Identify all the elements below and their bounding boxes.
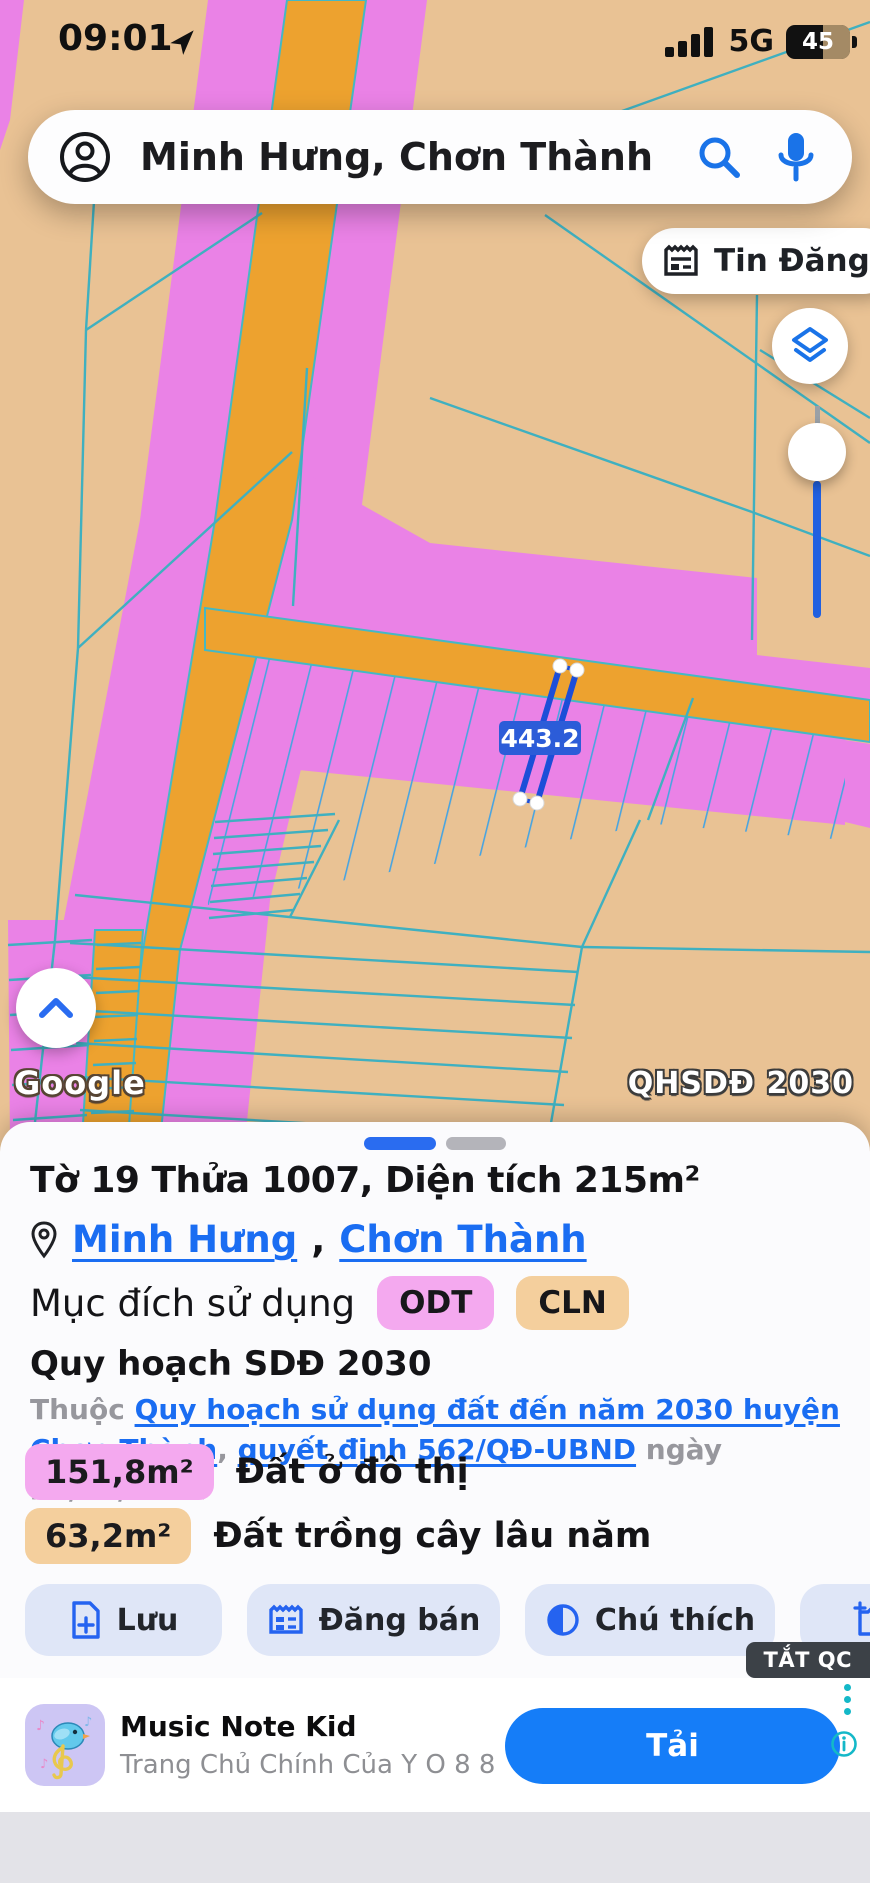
contrast-icon bbox=[545, 1602, 581, 1638]
parcel-area-label: 443.2 bbox=[500, 724, 579, 753]
ad-options-icon[interactable] bbox=[844, 1684, 851, 1715]
post-listing-icon bbox=[267, 1601, 305, 1639]
save-button[interactable]: Lưu bbox=[25, 1584, 222, 1656]
svg-text:♪: ♪ bbox=[40, 1757, 48, 1772]
zoom-slider-handle[interactable] bbox=[788, 423, 846, 481]
footer-spacer bbox=[0, 1812, 870, 1883]
save-label: Lưu bbox=[117, 1603, 179, 1638]
tin-dang-label: Tin Đăng bbox=[714, 243, 870, 279]
post-listing-label: Đăng bán bbox=[319, 1603, 481, 1638]
sheet-page-indicator[interactable] bbox=[0, 1137, 870, 1150]
map-layers-button[interactable] bbox=[772, 308, 848, 384]
search-input[interactable]: Minh Hưng, Chơn Thành bbox=[140, 135, 696, 179]
app-screen: 443.2 09:01 5G 45 Minh bbox=[0, 0, 870, 1883]
save-file-icon bbox=[69, 1600, 103, 1640]
chevron-up-icon bbox=[34, 993, 78, 1023]
battery-percent: 45 bbox=[802, 29, 834, 55]
ward-link[interactable]: Minh Hưng bbox=[72, 1218, 297, 1261]
planning-prefix: Thuộc bbox=[30, 1393, 135, 1426]
dismiss-ad-button[interactable]: TẮT QC bbox=[746, 1642, 870, 1678]
dismiss-ad-label: TẮT QC bbox=[764, 1648, 852, 1672]
legend-button[interactable]: Chú thích bbox=[525, 1584, 775, 1656]
ad-app-icon[interactable]: ♪ ♪ ♪ bbox=[25, 1704, 105, 1786]
legend-label: Chú thích bbox=[595, 1603, 755, 1638]
google-logo: Google bbox=[14, 1064, 146, 1102]
listings-icon bbox=[662, 242, 700, 280]
land-use-label: Mục đích sử dụng bbox=[30, 1282, 355, 1325]
ad-install-label: Tải bbox=[646, 1728, 699, 1764]
signal-strength-icon bbox=[665, 25, 717, 59]
location-separator: , bbox=[311, 1218, 325, 1261]
zone-row-cln: 63,2m² Đất trồng cây lâu năm bbox=[25, 1508, 651, 1564]
zone-name: Đất ở đô thị bbox=[236, 1452, 469, 1492]
svg-text:♪: ♪ bbox=[84, 1715, 92, 1730]
zone-name: Đất trồng cây lâu năm bbox=[213, 1516, 651, 1556]
battery-indicator: 45 bbox=[786, 25, 850, 59]
zone-area-badge: 63,2m² bbox=[25, 1508, 191, 1564]
ad-install-button[interactable]: Tải bbox=[505, 1708, 840, 1784]
camera-plus-icon bbox=[852, 1600, 870, 1640]
land-use-badge-odt: ODT bbox=[377, 1276, 494, 1330]
status-time: 09:01 bbox=[58, 18, 173, 59]
account-icon[interactable] bbox=[58, 130, 112, 184]
zone-row-odt: 151,8m² Đất ở đô thị bbox=[25, 1444, 469, 1500]
status-bar: 09:01 5G 45 bbox=[0, 0, 870, 80]
ad-title[interactable]: Music Note Kid bbox=[120, 1710, 357, 1743]
ad-banner[interactable]: ♪ ♪ ♪ Music Note Kid Trang Chủ Chính Của… bbox=[0, 1678, 870, 1812]
ad-info-icon[interactable] bbox=[830, 1730, 858, 1758]
page-indicator-inactive[interactable] bbox=[446, 1137, 506, 1150]
post-listing-button[interactable]: Đăng bán bbox=[247, 1584, 500, 1656]
map-overlay-badge: QHSDĐ 2030 bbox=[628, 1066, 854, 1101]
collapse-sheet-button[interactable] bbox=[16, 968, 96, 1048]
zoom-slider-track[interactable] bbox=[813, 481, 821, 618]
voice-search-icon[interactable] bbox=[776, 131, 816, 183]
layers-icon bbox=[787, 323, 833, 369]
land-use-row: Mục đích sử dụng ODT CLN bbox=[30, 1276, 629, 1330]
planning-heading: Quy hoạch SDĐ 2030 bbox=[30, 1344, 431, 1384]
ad-subtitle[interactable]: Trang Chủ Chính Của Y O 8 8 bbox=[120, 1750, 495, 1780]
zone-area-badge: 151,8m² bbox=[25, 1444, 214, 1500]
location-row: Minh Hưng, Chơn Thành bbox=[30, 1218, 587, 1261]
land-use-badge-cln: CLN bbox=[516, 1276, 628, 1330]
tin-dang-button[interactable]: Tin Đăng bbox=[642, 228, 870, 294]
svg-text:♪: ♪ bbox=[36, 1718, 45, 1734]
location-services-icon bbox=[168, 28, 196, 56]
search-icon[interactable] bbox=[696, 134, 742, 180]
network-type: 5G bbox=[729, 24, 775, 59]
parcel-title: Tờ 19 Thửa 1007, Diện tích 215m² bbox=[30, 1160, 700, 1201]
search-bar[interactable]: Minh Hưng, Chơn Thành bbox=[28, 110, 852, 204]
zoom-slider-track-top bbox=[815, 406, 820, 424]
district-link[interactable]: Chơn Thành bbox=[339, 1218, 586, 1261]
page-indicator-active[interactable] bbox=[364, 1137, 436, 1150]
location-pin-icon bbox=[30, 1220, 58, 1260]
